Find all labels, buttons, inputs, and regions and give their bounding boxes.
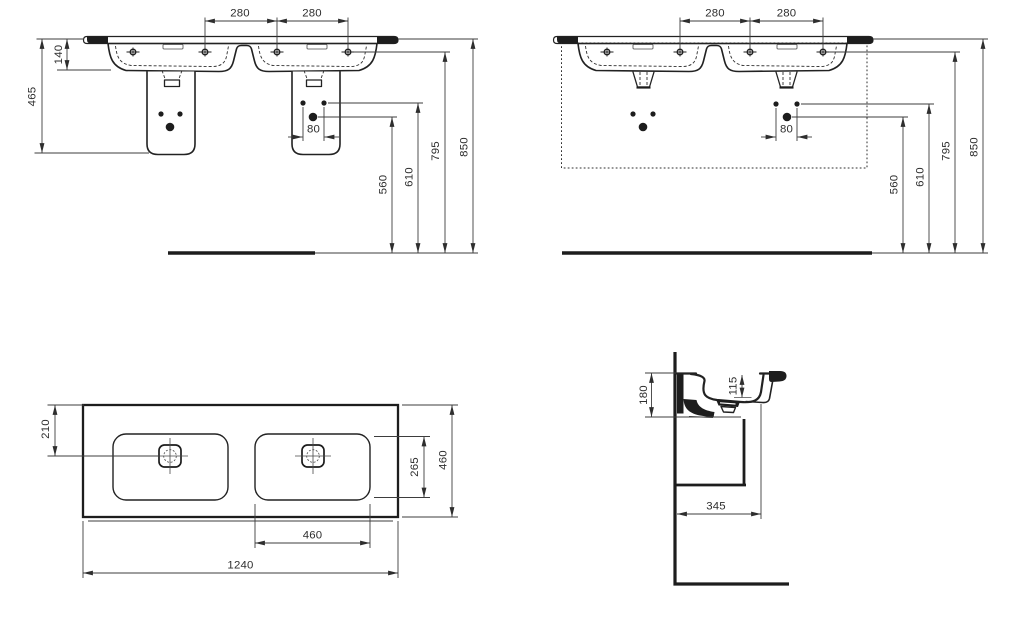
dim-label-80: 80 [307,124,320,136]
dim-label-210: 210 [40,419,52,439]
dim-label-850: 850 [459,137,471,157]
dim-label-180: 180 [638,385,650,405]
fixing-holes-left [630,111,655,131]
dim-label-460-bowl: 460 [303,530,323,542]
dim-label-280-right: 280 [777,8,797,20]
dim-label-265: 265 [409,457,421,477]
dim-label-795: 795 [941,141,953,161]
fixing-holes-right [773,101,799,121]
dim-label-345: 345 [706,501,726,513]
pedestal-right [292,72,340,155]
front-view-with-pedestals: 280 280 140 465 80 850 795 610 560 [27,8,479,254]
washbasin-body-outline [578,44,847,72]
drain-cup-left [633,72,654,88]
dim-label-1240: 1240 [227,560,253,572]
dim-label-795: 795 [430,141,442,161]
dim-label-80: 80 [780,124,793,136]
technical-drawing-canvas: 280 280 140 465 80 850 795 610 560 [0,0,1024,640]
dim-label-465: 465 [27,87,39,107]
front-apron-line [746,382,773,403]
washbasin-body-outline [108,44,377,72]
dimensions: 180 115 345 [638,373,761,519]
back-wall-cut [677,375,684,414]
rim-end-cap-right [377,37,398,44]
pedestal-left [147,72,195,155]
drain-outlet [721,407,736,413]
dim-label-850: 850 [969,137,981,157]
rim-bar [84,37,399,44]
rim-bar [554,37,874,44]
front-view-with-furniture: 280 280 80 850 795 610 560 [554,8,989,254]
front-rim-cut [769,371,787,382]
rim-end-cap-right [847,37,873,44]
dim-label-560: 560 [889,175,901,195]
side-section-view: 180 115 345 [638,352,789,584]
plan-view: 210 265 460 460 1240 [40,405,458,578]
dim-label-280-left: 280 [705,8,725,20]
dim-label-140: 140 [53,45,65,65]
rim-end-cap-left [557,37,578,44]
dim-label-610: 610 [915,167,927,187]
drain-cup-right [776,72,797,88]
trap-cover-outline [676,419,746,485]
rim-end-cap-left [87,37,108,44]
trap-cut [684,399,715,418]
dim-label-280-right: 280 [302,8,322,20]
dim-label-610: 610 [404,167,416,187]
dim-label-115: 115 [728,377,740,396]
dim-label-280-left: 280 [230,8,250,20]
dim-label-560: 560 [378,175,390,195]
dim-label-460-depth: 460 [438,450,450,470]
